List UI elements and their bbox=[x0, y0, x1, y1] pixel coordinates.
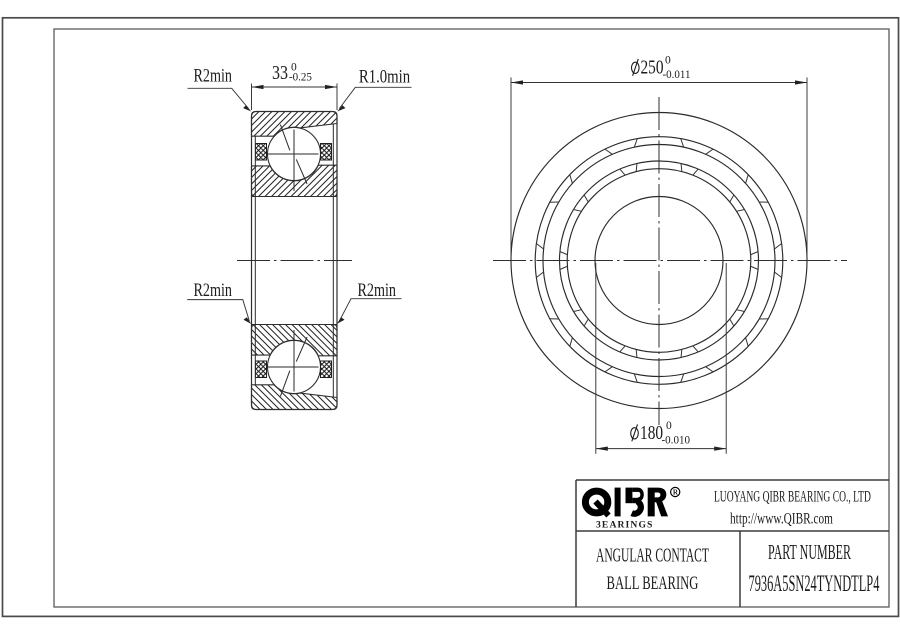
svg-text:R2min: R2min bbox=[193, 279, 231, 300]
svg-text:-0.25: -0.25 bbox=[289, 71, 312, 83]
svg-text:BALL BEARING: BALL BEARING bbox=[607, 571, 699, 594]
svg-text:3EARINGS: 3EARINGS bbox=[596, 520, 652, 531]
svg-text:R2min: R2min bbox=[193, 65, 231, 86]
svg-text:-0.011: -0.011 bbox=[663, 68, 691, 81]
svg-text:-0.010: -0.010 bbox=[662, 434, 691, 446]
svg-text:PART NUMBER: PART NUMBER bbox=[768, 539, 851, 564]
svg-text:180: 180 bbox=[640, 421, 663, 443]
svg-text:LUOYANG QIBR BEARING CO., LTD: LUOYANG QIBR BEARING CO., LTD bbox=[714, 488, 871, 505]
svg-text:R1.0min: R1.0min bbox=[359, 66, 411, 87]
svg-text:0: 0 bbox=[666, 420, 672, 432]
svg-text:250: 250 bbox=[641, 55, 664, 77]
svg-text:R2min: R2min bbox=[357, 279, 395, 300]
svg-text:33: 33 bbox=[272, 61, 288, 83]
svg-text:0: 0 bbox=[665, 54, 671, 66]
svg-text:7936A5SN24TYNDTLP4: 7936A5SN24TYNDTLP4 bbox=[749, 571, 880, 596]
svg-text:http://www.QIBR.com: http://www.QIBR.com bbox=[730, 510, 833, 527]
svg-text:ANGULAR CONTACT: ANGULAR CONTACT bbox=[596, 545, 709, 566]
